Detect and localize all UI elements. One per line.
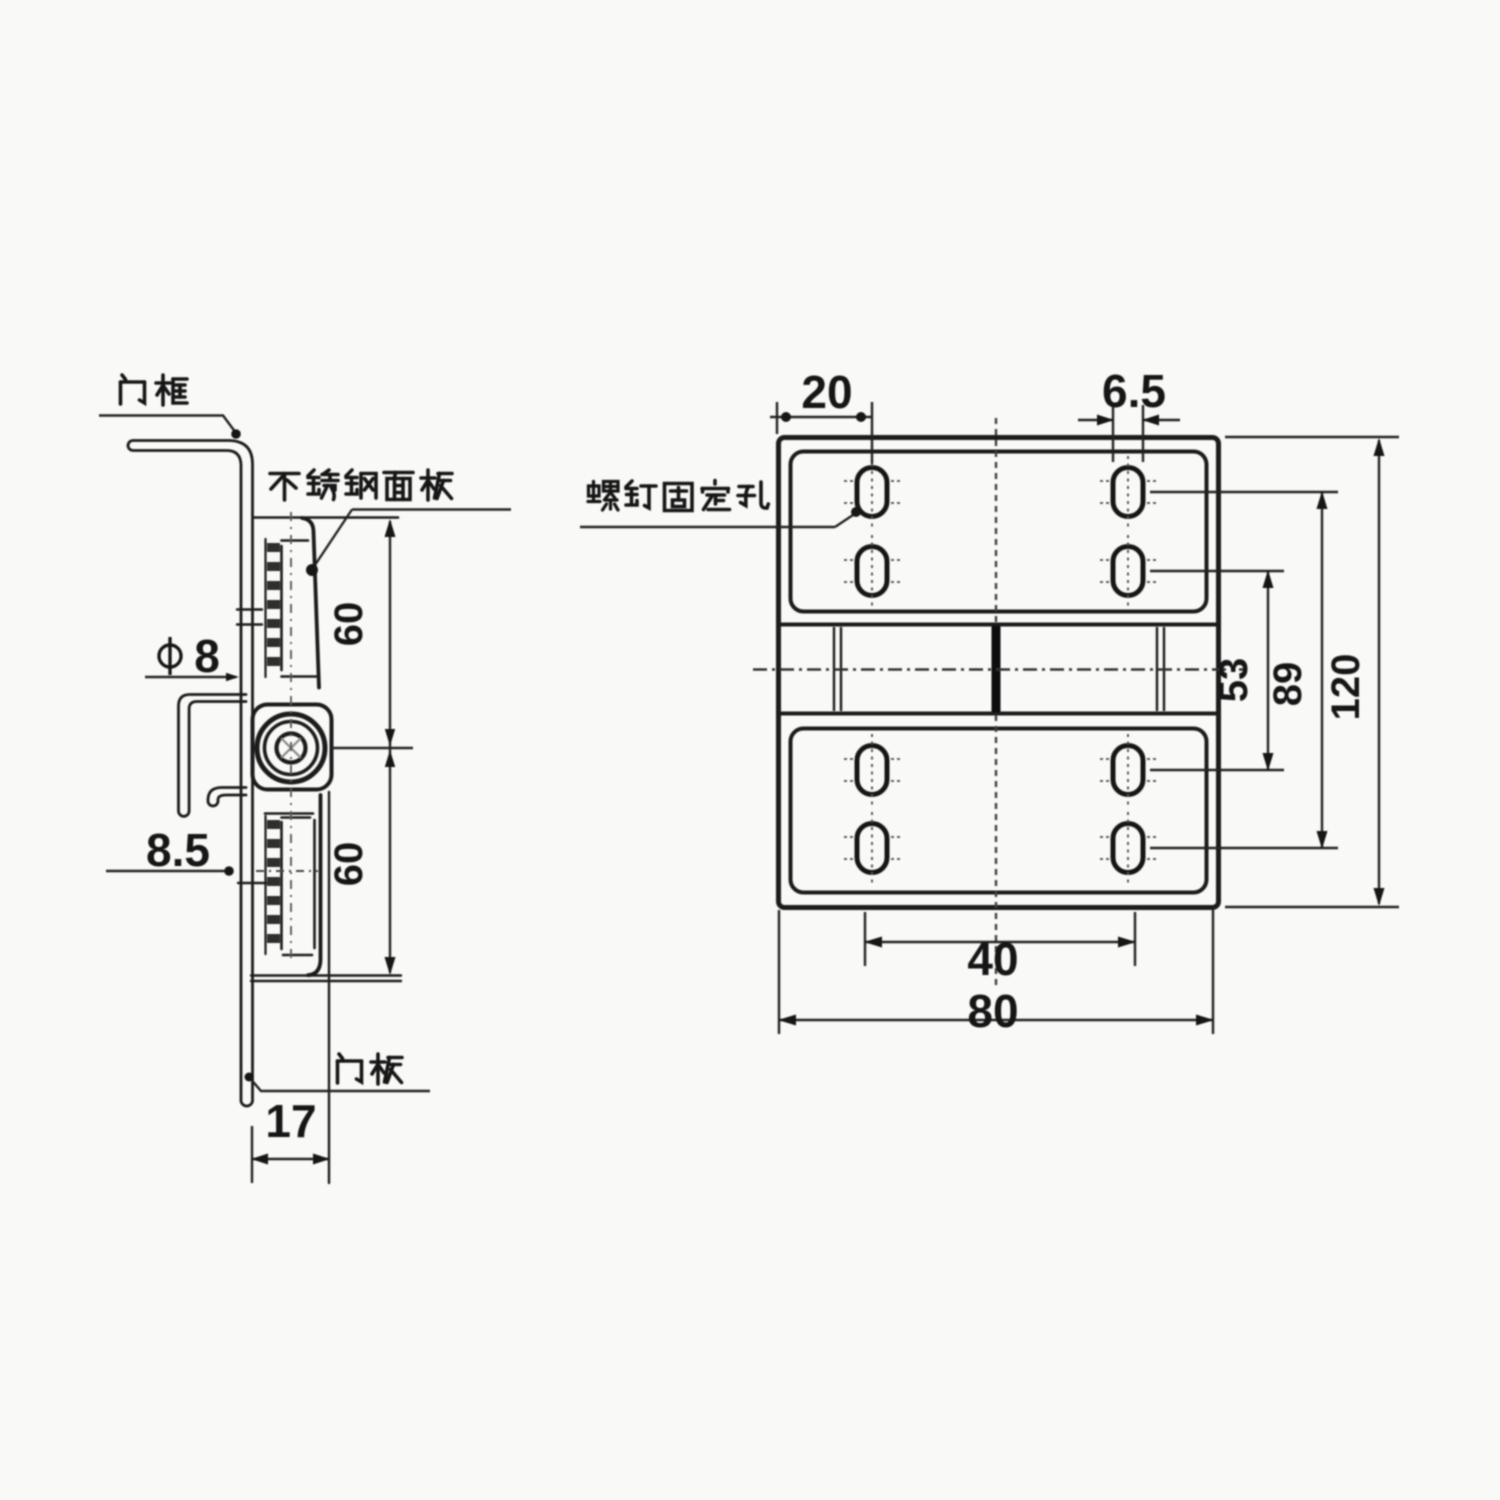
svg-text:53: 53 (1212, 658, 1256, 703)
svg-text:8.5: 8.5 (146, 824, 210, 876)
svg-text:60: 60 (327, 842, 371, 887)
svg-text:40: 40 (967, 933, 1018, 985)
svg-text:80: 80 (967, 985, 1018, 1037)
svg-text:6.5: 6.5 (1102, 365, 1166, 417)
svg-text:17: 17 (265, 1095, 316, 1147)
svg-text:20: 20 (801, 366, 852, 418)
svg-text:60: 60 (327, 602, 371, 647)
svg-text:89: 89 (1266, 662, 1310, 707)
svg-text:120: 120 (1324, 654, 1368, 721)
svg-text:8: 8 (194, 630, 220, 682)
